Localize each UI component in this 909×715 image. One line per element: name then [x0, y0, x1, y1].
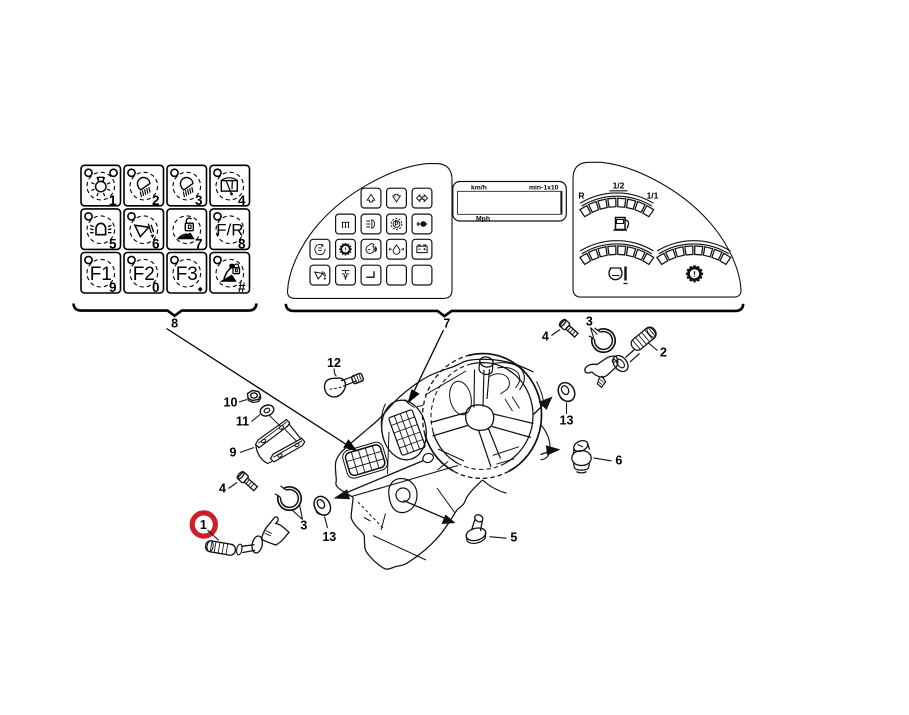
svg-text:3: 3 [586, 315, 593, 329]
svg-text:6: 6 [152, 236, 160, 251]
svg-text:P: P [395, 222, 399, 228]
svg-text:11: 11 [236, 415, 249, 429]
svg-text:8: 8 [171, 317, 178, 331]
svg-text:2: 2 [660, 346, 667, 360]
svg-text:1/2: 1/2 [613, 181, 625, 191]
svg-text:12: 12 [327, 356, 341, 370]
svg-text:4: 4 [542, 330, 549, 344]
svg-text:3: 3 [195, 193, 203, 208]
svg-text:4: 4 [238, 193, 246, 208]
svg-text:Mph: Mph [476, 215, 490, 222]
svg-text:7: 7 [195, 236, 203, 251]
svg-text:min-1x10: min-1x10 [529, 184, 559, 191]
svg-text:1: 1 [109, 193, 117, 208]
svg-text:R: R [578, 191, 584, 201]
svg-text:13: 13 [322, 530, 336, 544]
svg-text:F2: F2 [133, 264, 155, 285]
svg-text:13: 13 [560, 414, 574, 428]
svg-text:5: 5 [109, 236, 117, 251]
svg-text:1: 1 [200, 518, 207, 532]
svg-text:3: 3 [300, 519, 307, 533]
svg-text:1/1: 1/1 [647, 191, 659, 201]
svg-text:F3: F3 [176, 264, 198, 285]
svg-text:F/R: F/R [216, 221, 243, 240]
svg-text:4: 4 [219, 482, 226, 496]
svg-text:6: 6 [615, 454, 622, 468]
svg-text:F1: F1 [90, 264, 112, 285]
svg-text:9: 9 [230, 446, 237, 460]
svg-text:km/h: km/h [471, 184, 487, 191]
svg-text:2: 2 [152, 193, 160, 208]
svg-text:5: 5 [510, 531, 517, 545]
svg-text:7: 7 [443, 317, 450, 331]
svg-text:10: 10 [224, 396, 238, 410]
svg-text:#: # [238, 280, 246, 295]
